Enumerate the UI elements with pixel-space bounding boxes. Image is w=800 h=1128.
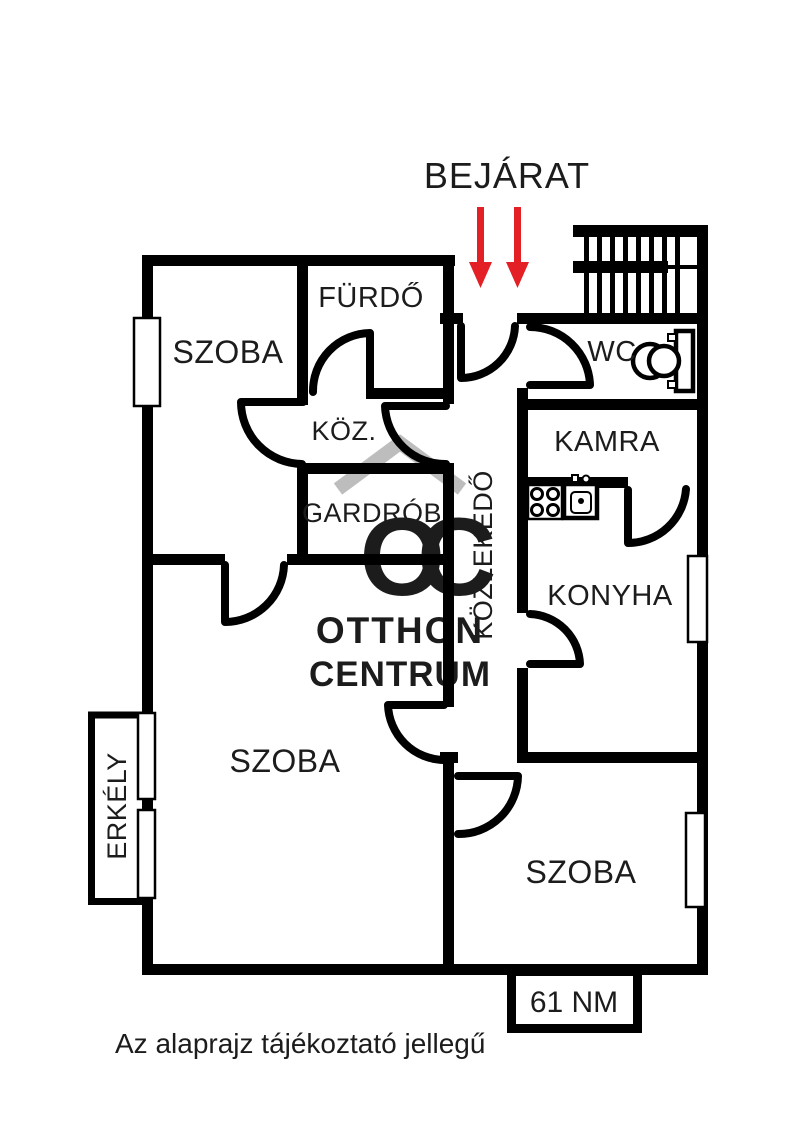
entrance-arrow-icon xyxy=(469,207,492,288)
room-label-szoba-bottom: SZOBA xyxy=(526,854,637,890)
stove-icon xyxy=(528,485,562,519)
watermark-line1: OTTHON xyxy=(316,610,484,651)
pantry-door-icon xyxy=(628,489,686,543)
entrance-door-icon xyxy=(461,326,515,378)
wc-door-icon xyxy=(530,327,590,385)
balcony-door-icon xyxy=(138,810,155,898)
stairs-icon xyxy=(573,225,703,313)
kitchen-door-icon xyxy=(530,614,580,664)
room-label-szoba-top: SZOBA xyxy=(173,334,284,370)
area-badge-label: 61 NM xyxy=(530,986,618,1019)
room-label-szoba-large: SZOBA xyxy=(230,743,341,779)
entrance-label: BEJÁRAT xyxy=(424,155,590,196)
room-label-wc: WC xyxy=(587,336,636,368)
bathroom-door-icon xyxy=(313,333,370,392)
floorplan-page: OC OTTHON CENTRUM xyxy=(0,0,800,1128)
room-label-furdo: FÜRDŐ xyxy=(318,281,424,314)
room-label-gardrob: GARDRÓB xyxy=(302,497,442,528)
window-icon xyxy=(688,556,707,642)
room-label-konyha: KONYHA xyxy=(547,580,673,612)
window-icon xyxy=(686,813,705,907)
watermark-logo: OC OTTHON CENTRUM xyxy=(309,443,494,694)
room-door-icon xyxy=(458,776,518,834)
room-label-kozlekedo: KÖZLEKEDŐ xyxy=(467,470,498,640)
room-door-icon xyxy=(225,565,284,622)
area-badge: 61 NM xyxy=(512,972,638,1029)
room-door-icon xyxy=(388,705,444,760)
balcony-door-icon xyxy=(138,713,155,799)
room-label-koz: KÖZ. xyxy=(311,416,376,446)
disclaimer-text: Az alaprajz tájékoztató jellegű xyxy=(115,1028,485,1059)
toilet-icon xyxy=(633,331,693,391)
entrance-arrows xyxy=(469,207,529,288)
room-label-kamra: KAMRA xyxy=(554,426,660,458)
watermark-line2: CENTRUM xyxy=(309,655,491,694)
window-icon xyxy=(134,318,160,406)
room-door-icon xyxy=(241,402,303,464)
floorplan-canvas: OC OTTHON CENTRUM xyxy=(0,0,800,1128)
entrance-arrow-icon xyxy=(506,207,529,288)
room-label-erkely: ERKÉLY xyxy=(102,752,132,860)
